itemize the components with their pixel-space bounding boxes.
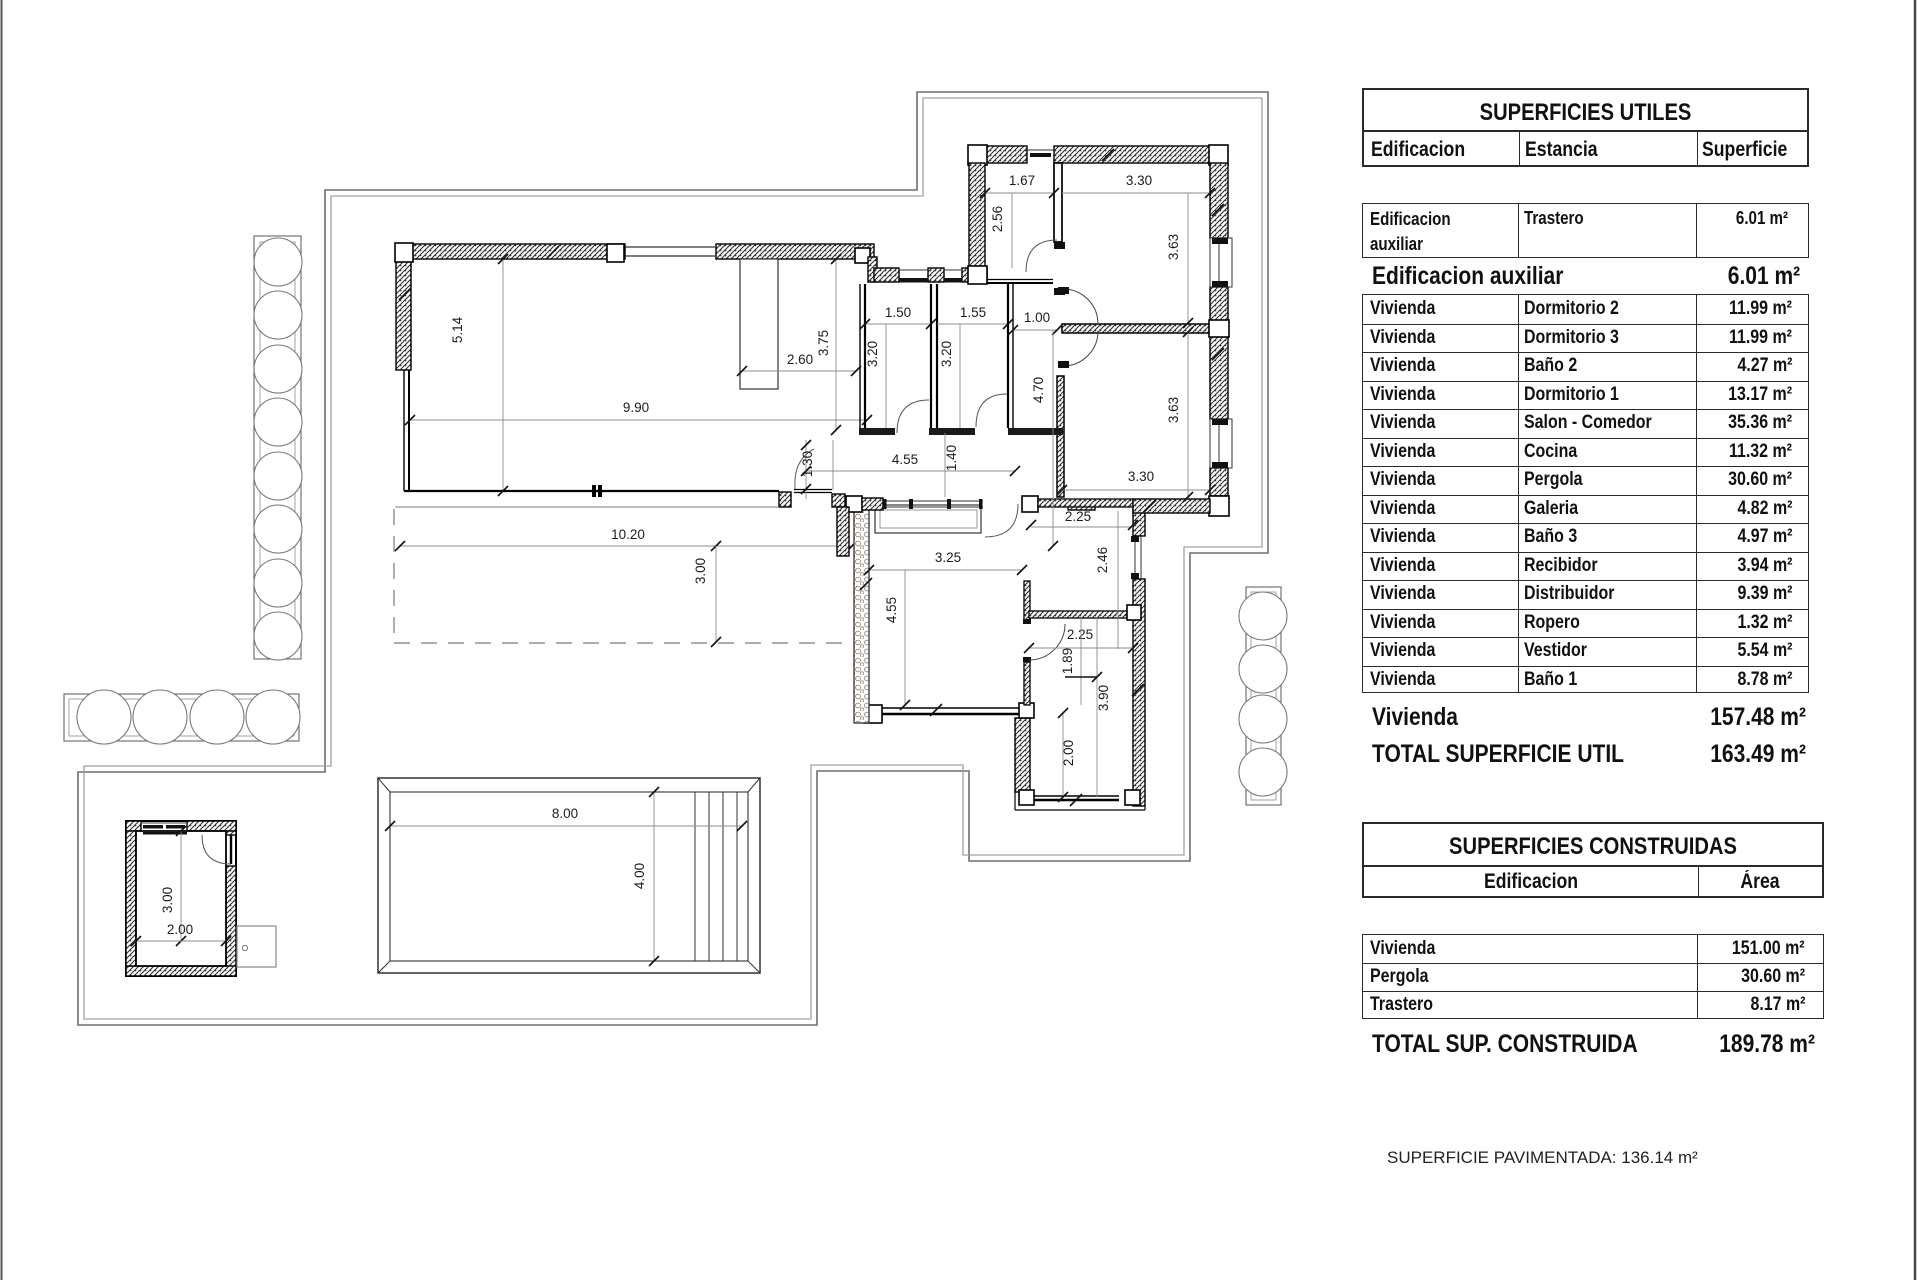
svg-text:2.25: 2.25 [1067,627,1093,642]
svg-text:1.30: 1.30 [800,451,815,477]
svg-text:3.20: 3.20 [939,341,954,367]
svg-text:3.63: 3.63 [1166,234,1181,260]
svg-text:2.00: 2.00 [167,922,193,937]
svg-text:3.00: 3.00 [693,558,708,584]
svg-text:1.89: 1.89 [1060,648,1075,674]
svg-text:10.20: 10.20 [611,527,645,542]
svg-text:2.60: 2.60 [787,352,813,367]
svg-text:2.46: 2.46 [1095,547,1110,573]
svg-text:1.55: 1.55 [960,305,986,320]
svg-text:3.63: 3.63 [1166,397,1181,423]
svg-text:2.25: 2.25 [1065,509,1091,524]
svg-text:9.90: 9.90 [623,400,649,415]
svg-text:3.30: 3.30 [1128,469,1154,484]
svg-text:2.00: 2.00 [1061,740,1076,766]
svg-text:4.00: 4.00 [632,863,647,889]
svg-text:1.50: 1.50 [885,305,911,320]
svg-text:3.25: 3.25 [935,550,961,565]
svg-text:3.20: 3.20 [865,341,880,367]
svg-text:4.55: 4.55 [892,452,918,467]
svg-text:8.00: 8.00 [552,806,578,821]
svg-text:2.56: 2.56 [990,206,1005,232]
svg-text:3.90: 3.90 [1096,685,1111,711]
svg-text:4.55: 4.55 [884,597,899,623]
svg-text:3.30: 3.30 [1126,173,1152,188]
svg-text:1.00: 1.00 [1024,310,1050,325]
svg-text:1.67: 1.67 [1009,173,1035,188]
svg-text:3.00: 3.00 [160,887,175,913]
svg-text:4.70: 4.70 [1031,377,1046,403]
svg-text:5.14: 5.14 [450,316,465,343]
svg-text:1.40: 1.40 [944,445,959,471]
svg-text:3.75: 3.75 [816,330,831,356]
